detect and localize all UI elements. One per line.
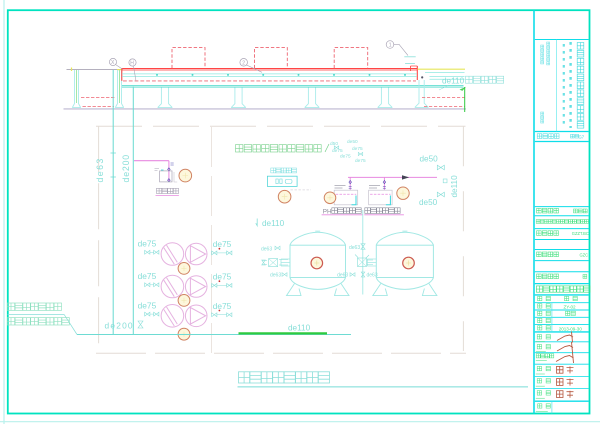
- svg-text:de50: de50: [419, 198, 438, 207]
- svg-text:de200: de200: [105, 320, 134, 330]
- svg-text:de75: de75: [138, 300, 157, 310]
- svg-text:de63: de63: [270, 273, 281, 279]
- svg-text:de110: de110: [262, 219, 285, 228]
- svg-text:de75: de75: [213, 272, 232, 282]
- svg-text:de63: de63: [349, 245, 360, 251]
- svg-text:2: 2: [242, 61, 245, 67]
- svg-text:de50: de50: [420, 155, 439, 164]
- svg-text:de75: de75: [352, 146, 363, 152]
- svg-text:PH: PH: [323, 208, 332, 215]
- svg-text:de50: de50: [347, 139, 358, 145]
- svg-text:de75: de75: [213, 239, 232, 249]
- svg-text:de110: de110: [450, 175, 459, 198]
- svg-text:H: H: [130, 61, 134, 67]
- svg-text:de63: de63: [337, 273, 348, 279]
- svg-text:G7: G7: [579, 135, 585, 140]
- svg-text:de75: de75: [213, 301, 232, 311]
- svg-text:GZC: GZC: [580, 252, 589, 257]
- svg-text:de63: de63: [95, 157, 105, 182]
- svg-text:de110: de110: [442, 77, 465, 86]
- svg-text:de63: de63: [367, 273, 378, 279]
- svg-text:de200: de200: [121, 154, 131, 182]
- svg-text:ZY-02: ZY-02: [564, 304, 577, 309]
- svg-text:de75: de75: [355, 158, 366, 164]
- svg-text:de75: de75: [138, 239, 157, 249]
- svg-text:2013-09-30: 2013-09-30: [559, 326, 583, 331]
- svg-text:de75: de75: [138, 271, 157, 281]
- svg-text:GZZT.BC: GZZT.BC: [572, 231, 589, 236]
- svg-text:de63: de63: [261, 246, 272, 252]
- svg-text:1: 1: [389, 43, 392, 49]
- svg-text:de75: de75: [332, 148, 343, 154]
- svg-text:de110: de110: [288, 324, 311, 333]
- svg-text:de75: de75: [340, 154, 351, 160]
